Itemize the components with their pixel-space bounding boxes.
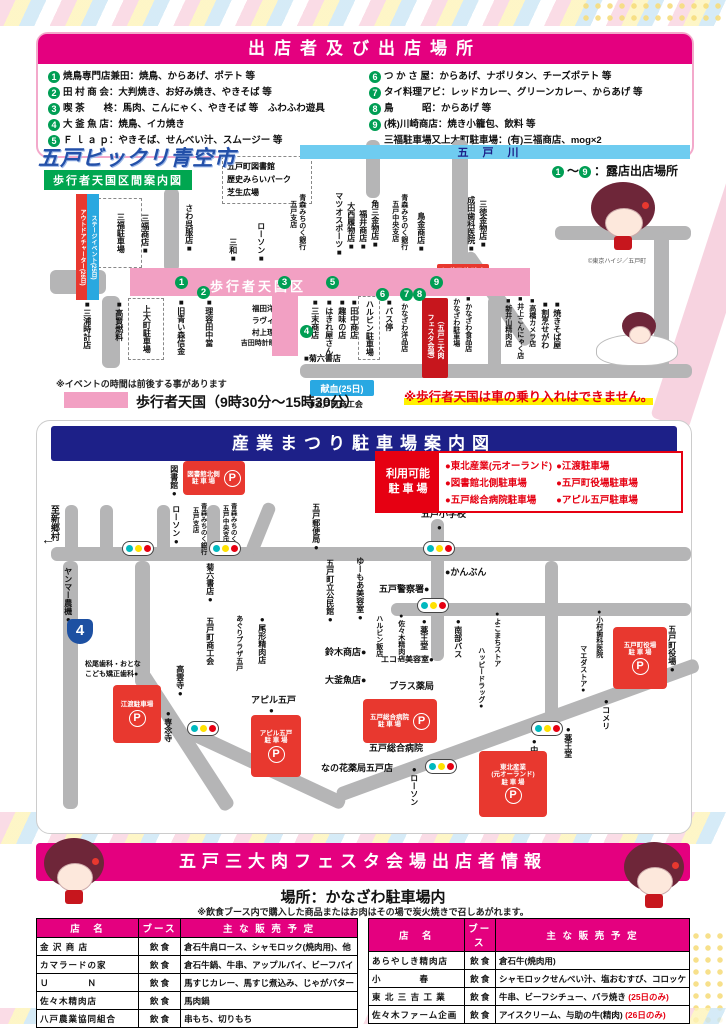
map-label: 高雲寺● [175, 665, 184, 698]
parking-legend-col2: ●江渡駐車場●五戸町役場駐車場●アピル五戸駐車場 [556, 457, 638, 507]
shop-name: カマラードの家 [37, 956, 139, 974]
mascot-face [57, 863, 93, 892]
map-label: ● [437, 523, 442, 533]
stall-number-marker: 7 [400, 288, 413, 301]
booth-type: 飲 食 [464, 970, 495, 988]
dashed-zone: 上大町駐車場 [128, 298, 164, 360]
map-label: こども矯正歯科● [85, 671, 138, 679]
festa-table-left: 店 名ブース主 な 販 売 予 定金 沢 商 店飲 食倉石牛肩ロース、シャモロッ… [36, 918, 358, 1028]
map-label: 五戸町商工会 [205, 617, 214, 665]
map-label: あぐりプラザ五戸 [235, 615, 243, 671]
map-label: プラス薬局 [389, 681, 434, 692]
parking-label: 図書館北側駐 車 場 [187, 471, 220, 486]
booth-type: 飲 食 [138, 938, 180, 956]
vendor-number: 3 [48, 103, 60, 115]
light-dot [213, 545, 220, 552]
zone-label: 三福駐車場 [116, 213, 125, 253]
legend-item: ●江渡駐車場 [556, 458, 638, 472]
table-header-row: 店 名ブース主 な 販 売 予 定 [37, 919, 358, 938]
stall-number-marker: 8 [413, 288, 426, 301]
map-label: ■理容田中當 [204, 298, 213, 347]
vendor-number: 4 [48, 119, 60, 131]
vendor-item: 2田 村 商 会：大判焼き、お好み焼き、やきそば 等 [48, 85, 363, 101]
map-label: 成田歯科医院■ [466, 196, 475, 253]
items-text: 馬肉鍋 [184, 996, 210, 1006]
table-row: Ｕ Ｎ飲 食馬すじカレー、馬すじ煮込み、じゃがバター [37, 974, 358, 992]
mascot-body [614, 236, 632, 250]
map-label: マツオスポーツ■ [334, 192, 343, 257]
flower-icon [642, 202, 649, 209]
parking-label: 東北産業(元オーランド)駐 車 場 [491, 764, 534, 787]
table-header: 主 な 販 売 予 定 [495, 919, 689, 952]
map-label: 五戸中央支店 [221, 505, 228, 544]
stall-number-marker: 2 [197, 286, 210, 299]
mascot-festa-left [42, 838, 108, 914]
traffic-light-icon [423, 541, 455, 556]
road [164, 188, 179, 272]
light-dot [135, 545, 142, 552]
mascot-body [645, 894, 663, 908]
map-label: 青森みちのく銀行 [199, 503, 206, 555]
map-label: ■菊六書店 [304, 354, 341, 364]
parking-label-line: 駐 車 場 [260, 737, 293, 745]
dashed-zone: 三福駐車場 [98, 198, 142, 268]
parking-box: 五戸町役場駐 車 場P [613, 627, 667, 689]
mascot-afro-girl [588, 182, 658, 254]
route-4-shield: 4 [67, 619, 93, 644]
parking-legend-col1: ●東北産業(元オーランド)●図書館北側駐車場●五戸総合病院駐車場 [445, 457, 552, 507]
table-header: 主 な 販 売 予 定 [181, 919, 358, 938]
gonohe-river: 五戸川 [300, 145, 690, 159]
legend-label-line1: 利用可能 [386, 468, 430, 480]
map-label: ■旧青い森信金 [176, 298, 185, 355]
map-label: ゆーもあ美容室● [355, 557, 364, 622]
legend-item: ●五戸町役場駐車場 [556, 475, 638, 489]
table-header-row: 店 名ブース主 な 販 売 予 定 [369, 919, 690, 952]
shop-name: 金 沢 商 店 [37, 938, 139, 956]
map-label: 五戸町立公民館● [325, 559, 334, 624]
map-label: ■三浦時計店 [82, 300, 91, 349]
vendor-text: (株)川崎商店：焼き小籠包、飲料 等 [384, 117, 535, 133]
parking-box: 五戸総合病院駐 車 場P [363, 699, 437, 743]
zone-line: 歴史みらいパーク [227, 173, 307, 186]
items-text: アイスクリーム、与助の牛(精肉) [499, 1010, 625, 1020]
table-header: 店 名 [37, 919, 139, 938]
road [157, 505, 170, 553]
map-label: 大釜魚店● [325, 675, 366, 686]
day-only-note: (26日のみ) [625, 1010, 666, 1020]
items-text: シャモロックせんべい汁、塩おむすび、コロッケ [499, 974, 686, 984]
traffic-light-icon [425, 759, 457, 774]
vendor-text: 焼鳥専門店兼田：焼鳥、からあげ、ポテト 等 [63, 69, 255, 85]
zone-label: ハルビン駐車場 [365, 300, 374, 356]
map-label: 角三金物店■ [370, 200, 379, 249]
parking-box: 東北産業(元オーランド)駐 車 場P [479, 751, 547, 817]
map-callout-box: フェスタ会場）（五戸三大肉 [422, 298, 448, 378]
booth-type: 飲 食 [138, 1010, 180, 1028]
callout-col: フェスタ会場） [425, 314, 435, 363]
map-label: 五戸支店 [191, 507, 198, 533]
map-label: ■高橋カメラ店 [528, 298, 536, 347]
road [488, 296, 501, 378]
walkzone-legend-swatch [64, 392, 128, 408]
festa-place: 場所：かなざわ駐車場内 [0, 886, 726, 907]
stall-number-marker: 9 [430, 276, 443, 289]
vendor-item: 6つ か さ 屋：からあげ、ナポリタン、チーズポテト 等 [369, 69, 684, 85]
map-label: ハルビン飯店 [375, 615, 383, 657]
shop-name: 佐々木精肉店 [37, 992, 139, 1010]
stall-number-marker: 5 [326, 276, 339, 289]
table-row: 東 北 三 吉 工 業飲 食牛串、ビーフシチュー、バラ焼き (25日のみ) [369, 988, 690, 1006]
vendor-text: 大 釜 魚 店：焼鳥、イカ焼き [63, 117, 185, 133]
items-text: 牛串、ビーフシチュー、バラ焼き [499, 992, 628, 1002]
light-dot [231, 545, 238, 552]
parking-label-line: 図書館北側 [187, 471, 220, 479]
booth-type: 飲 食 [464, 1006, 495, 1024]
map-label: 五戸郵便局● [311, 503, 320, 552]
map-label: ■かなざわ洋品店 [400, 296, 408, 352]
map-label: ローソン● [171, 505, 180, 546]
road [65, 505, 78, 553]
map-label: ヤンマー農機● [63, 567, 72, 624]
light-dot [421, 602, 428, 609]
items-cell: 馬肉鍋 [181, 992, 358, 1010]
parking-label-line: 五戸総合病院 [370, 714, 409, 722]
booth-type: 飲 食 [138, 956, 180, 974]
festa-table-right: 店 名ブース主 な 販 売 予 定あらやしき精肉店飲 食倉石牛(焼肉用)小 春飲… [368, 918, 690, 1024]
decor-dots-top-right [580, 0, 726, 24]
map-label: ●薬王堂 [563, 725, 572, 758]
map-label: ハッピードラッグ● [477, 647, 485, 710]
callout-col: （五戸三大肉 [435, 317, 445, 359]
table-header: ブース [464, 919, 495, 952]
items-cell: シャモロックせんべい汁、塩おむすび、コロッケ [495, 970, 689, 988]
parking-label-line: 駐 車 場 [624, 649, 657, 657]
mascot-festa-right [622, 842, 688, 918]
parking-label-line: アピル五戸 [260, 730, 293, 738]
map-label: なの花薬局五戸店 [321, 763, 393, 774]
items-text: 倉石牛肩ロース、シャモロック(焼肉用)、他 [184, 942, 351, 952]
map-label: 三徳金物店■ [478, 200, 487, 249]
light-dot [429, 763, 436, 770]
zone-line: 五戸町図書館 [227, 160, 307, 173]
map1-title: 五戸ビックリ青空市 [38, 142, 236, 172]
light-dot [144, 545, 151, 552]
legend-label-line2: 駐 車 場 [388, 483, 427, 495]
map-label: マエダストア● [579, 645, 587, 694]
map-label: ●コメリ [601, 697, 610, 730]
traffic-light-icon [122, 541, 154, 556]
parking-box: アピル五戸駐 車 場P [251, 715, 301, 777]
map-label: ■趣味の店 [337, 298, 346, 339]
map-label: ローソン■ [256, 222, 265, 263]
vendor-text: つ か さ 屋：からあげ、ナポリタン、チーズポテト 等 [384, 69, 611, 85]
parking-legend-label: 利用可能 駐 車 場 [377, 453, 439, 511]
parking-p-icon: P [505, 787, 522, 804]
light-dot [553, 725, 560, 732]
flower-icon [672, 862, 679, 869]
map-label: ●小村歯科医院 [595, 609, 603, 658]
parking-label: 五戸町役場駐 車 場 [624, 642, 657, 657]
table-row: 佐々木ファーム企画飲 食アイスクリーム、与助の牛(精肉) (26日のみ) [369, 1006, 690, 1024]
legend-item: ●五戸総合病院駐車場 [445, 492, 552, 506]
map-label: ■新井山精肉店 [504, 298, 512, 347]
light-dot [427, 545, 434, 552]
map-label: エコー美容室● [381, 655, 434, 665]
parking-label-line: 駐 車 場 [370, 721, 409, 729]
mascot-face [605, 208, 643, 238]
vendor-list-left: 1焼鳥専門店兼田：焼鳥、からあげ、ポテト 等2田 村 商 会：大判焼き、お好み焼… [48, 69, 363, 149]
stall-num-1: 1 [552, 166, 564, 178]
map-label: ■焼きそば屋 [552, 300, 561, 349]
vendor-number: 1 [48, 71, 60, 83]
map-label: ■かなざわ食品店 [464, 296, 472, 352]
mascot-face [637, 867, 673, 896]
vendor-number: 6 [369, 71, 381, 83]
road [545, 561, 558, 729]
day-only-note: (25日のみ) [628, 992, 669, 1002]
zone-line: 芝生広場 [227, 186, 307, 199]
mascot-girl-on-horse [596, 312, 680, 370]
parking-p-icon: P [268, 746, 285, 763]
map-label: かなざわ駐車場 [452, 298, 460, 347]
map-label: ■井上こんにゃく店 [516, 296, 524, 359]
vendor-text: 田 村 商 会：大判焼き、お好み焼き、やきそば 等 [63, 85, 272, 101]
map-label: ●ローソン [409, 765, 418, 806]
items-text: 馬すじカレー、馬すじ煮込み、じゃがバター [184, 978, 354, 988]
vendor-item: 3喫 茶 柊：馬肉、こんにゃく、やきそば 等 ふわふわ遊具 [48, 101, 363, 117]
items-cell: 倉石牛鍋、牛串、アップルパイ、ビーフパイ [181, 956, 358, 974]
vendor-item: 8鳥 昭：からあげ 等 [369, 101, 684, 117]
parking-label-line: 五戸町役場 [624, 642, 657, 650]
table-row: 金 沢 商 店飲 食倉石牛肩ロース、シャモロック(焼肉用)、他 [37, 938, 358, 956]
map-label: さわ呉服店■ [184, 204, 193, 253]
parking-label: アピル五戸駐 車 場 [260, 730, 293, 745]
stall-location-note: 1～9：露店出店場所 [552, 162, 678, 179]
stall-number-marker: 4 [300, 325, 313, 338]
river-label: 五戸川 [458, 144, 533, 160]
stall-number-marker: 6 [376, 288, 389, 301]
copyright-note: ©東京ハイジ／五戸町 [588, 256, 646, 265]
parking-label-line: 駐 車 場 [491, 779, 534, 787]
map-label: ■高賢燃料 [114, 300, 123, 341]
light-dot [445, 545, 452, 552]
vendor-number: 2 [48, 87, 60, 99]
no-cars-warning: ※歩行者天国は車の乗り入れはできません。 [404, 386, 653, 405]
items-cell: 馬すじカレー、馬すじ煮込み、じゃがバター [181, 974, 358, 992]
traffic-light-icon [209, 541, 241, 556]
booth-type: 飲 食 [464, 988, 495, 1006]
items-cell: 串もち、切りもち [181, 1010, 358, 1028]
vendor-text: タイ料理アビ：レッドカレー、グリーンカレー、からあげ 等 [384, 85, 642, 101]
map-label: ■バス停 [384, 298, 393, 331]
table-row: カマラードの家飲 食倉石牛鍋、牛串、アップルパイ、ビーフパイ [37, 956, 358, 974]
shop-name: 東 北 三 吉 工 業 [369, 988, 465, 1006]
map-label: アピル五戸 [251, 695, 296, 706]
parking-box: 江渡駐車場P [113, 685, 161, 743]
items-text: 倉石牛鍋、牛串、アップルパイ、ビーフパイ [184, 960, 353, 970]
shop-name: 佐々木ファーム企画 [369, 1006, 465, 1024]
light-dot [535, 725, 542, 732]
map-label: ■はきれ屋さん [324, 298, 333, 355]
light-dot [439, 602, 446, 609]
booth-type: 飲 食 [464, 952, 495, 970]
map-label: ●よこまちストア [493, 611, 501, 667]
items-text: 倉石牛(焼肉用) [499, 956, 556, 966]
table-row: あらやしき精肉店飲 食倉石牛(焼肉用) [369, 952, 690, 970]
map-label: 鳥金商店■ [416, 212, 425, 253]
map-label: 図書館● [169, 465, 178, 498]
map1-subtitle: 歩行者天国区間案内図 [44, 170, 192, 190]
map-label: 五戸町役場● [667, 625, 676, 674]
light-dot [200, 725, 207, 732]
zone-label: 上大町駐車場 [142, 305, 151, 353]
vendor-number: 8 [369, 103, 381, 115]
parking-box: 図書館北側駐 車 場P [183, 461, 245, 495]
items-text: 串もち、切りもち [184, 1014, 252, 1024]
festa-note: ※飲食ブース内で購入した商品またはお肉はその場で炭火焼きで召しあがれます。 [0, 905, 726, 918]
map-label: ●尾形精肉店 [257, 615, 266, 664]
festa-section-title: 五戸三大肉フェスタ会場出店者情報 [36, 843, 690, 881]
map-label: ■割烹せがわ [540, 300, 549, 349]
shop-name: 八戸農業協同組合 [37, 1010, 139, 1028]
map-label: 菊六書店● [205, 563, 214, 604]
vendor-section-title: 出店者及び出店場所 [38, 34, 692, 64]
walkzone-label: 歩行者天国区 [210, 276, 306, 295]
flower-icon [92, 858, 99, 865]
parking-legend: 利用可能 駐 車 場 ●東北産業(元オーランド)●図書館北側駐車場●五戸総合病院… [375, 451, 683, 513]
map-label: 鈴木商店● [325, 647, 366, 658]
map-label: ■田中商店 [349, 298, 358, 339]
vendor-item: 9(株)川崎商店：焼き小籠包、飲料 等 [369, 117, 684, 133]
light-dot [209, 725, 216, 732]
map-label: ●専念寺 [163, 709, 172, 742]
shop-name: 小 春 [369, 970, 465, 988]
map-label: 松尾歯科・おとな [85, 661, 141, 669]
map-label: 五戸総合病院 [369, 743, 423, 754]
light-dot [222, 545, 229, 552]
items-cell: 牛串、ビーフシチュー、バラ焼き (25日のみ) [495, 988, 689, 1006]
map-label: 五戸警察署● [379, 584, 429, 595]
map-label: 大西履物店■ [346, 202, 355, 251]
vendor-item: 7タイ料理アビ：レッドカレー、グリーンカレー、からあげ 等 [369, 85, 684, 101]
vendor-number: 7 [369, 87, 381, 99]
parking-label: 五戸総合病院駐 車 場 [370, 714, 409, 729]
table-row: 佐々木精肉店飲 食馬肉鍋 [37, 992, 358, 1010]
road [100, 505, 113, 553]
traffic-light-icon [417, 598, 449, 613]
light-dot [191, 725, 198, 732]
map-label: ●薬王堂 [419, 617, 428, 650]
light-dot [447, 763, 454, 770]
table-row: 小 春飲 食シャモロックせんべい汁、塩おむすび、コロッケ [369, 970, 690, 988]
light-dot [126, 545, 133, 552]
map-label: 福井商店■ [358, 210, 367, 251]
event-time-note: ※イベントの時間は前後する事があります [56, 377, 227, 390]
map-label: 青森みちのく銀行 [298, 194, 306, 250]
map-label: ●かんぶん [445, 567, 486, 578]
vendor-number: 9 [369, 119, 381, 131]
legend-item: ●図書館北側駐車場 [445, 475, 552, 489]
booth-type: 飲 食 [138, 992, 180, 1010]
stall-num-9: 9 [579, 166, 591, 178]
vendor-item: 4大 釜 魚 店：焼鳥、イカ焼き [48, 117, 363, 133]
map-label: 青森みちのく銀行 [400, 194, 408, 250]
map-label: ●南部バス [453, 617, 462, 658]
table-header: 店 名 [369, 919, 465, 952]
parking-p-icon: P [129, 710, 146, 727]
map-label: 五戸支店 [289, 200, 297, 228]
map-label: 五戸中央支店 [391, 200, 399, 242]
parking-label: 江渡駐車場 [121, 701, 154, 709]
items-cell: アイスクリーム、与助の牛(精肉) (26日のみ) [495, 1006, 689, 1024]
parking-label-line: (元オーランド) [491, 771, 534, 779]
shop-name: Ｕ Ｎ [37, 974, 139, 992]
parking-p-icon: P [413, 713, 430, 730]
vendor-list-right: 6つ か さ 屋：からあげ、ナポリタン、チーズポテト 等7タイ料理アビ：レッドカ… [369, 69, 684, 149]
map-label: ●佐々木精肉店 [397, 613, 405, 662]
map-label: 三和■ [228, 238, 237, 263]
traffic-light-icon [531, 721, 563, 736]
parking-p-icon: P [632, 658, 649, 675]
booth-type: 飲 食 [138, 974, 180, 992]
traffic-light-icon [187, 721, 219, 736]
dashed-zone: ハルビン駐車場 [358, 296, 380, 360]
parking-label-line: 駐 車 場 [187, 478, 220, 486]
stall-note-text: ：露店出店場所 [594, 162, 678, 179]
stall-number-marker: 3 [278, 276, 291, 289]
light-dot [544, 725, 551, 732]
flyer-page: { "colors":{"accent_pink":"#E4007F","nav… [0, 0, 726, 1024]
legend-item: ●アピル五戸駐車場 [556, 492, 638, 506]
table-header: ブース [138, 919, 180, 938]
parking-label-line: 江渡駐車場 [121, 701, 154, 709]
vendor-text: 鳥 昭：からあげ 等 [384, 101, 491, 117]
vendor-text: 喫 茶 柊：馬肉、こんにゃく、やきそば 等 ふわふわ遊具 [63, 101, 325, 117]
items-cell: 倉石牛肩ロース、シャモロック(焼肉用)、他 [181, 938, 358, 956]
event-ribbon: ステージイベント(25日) [87, 194, 99, 300]
parking-p-icon: P [224, 470, 241, 487]
shop-name: あらやしき精肉店 [369, 952, 465, 970]
parking-map-card: 産業まつり駐車場案内図 利用可能 駐 車 場 ●東北産業(元オーランド)●図書館… [36, 420, 692, 834]
items-cell: 倉石牛(焼肉用) [495, 952, 689, 970]
mascot-face [629, 326, 651, 344]
map-label: 三福商店■ [140, 214, 149, 255]
vendor-item: 1焼鳥専門店兼田：焼鳥、からあげ、ポテト 等 [48, 69, 363, 85]
legend-item: ●東北産業(元オーランド) [445, 458, 552, 472]
light-dot [430, 602, 437, 609]
pedestrian-zone-map: 五戸ビックリ青空市 歩行者天国区間案内図 五戸川 歩行者天国区 1～9：露店出店… [36, 140, 690, 416]
light-dot [438, 763, 445, 770]
light-dot [436, 545, 443, 552]
map-label: ← [41, 531, 55, 548]
table-row: 八戸農業協同組合飲 食串もち、切りもち [37, 1010, 358, 1028]
stall-tilde: ～ [567, 162, 579, 179]
stall-number-marker: 1 [175, 276, 188, 289]
walkzone-legend-text: 歩行者天国（9時30分～15時30分） [136, 392, 359, 412]
mascot-body [65, 890, 83, 904]
